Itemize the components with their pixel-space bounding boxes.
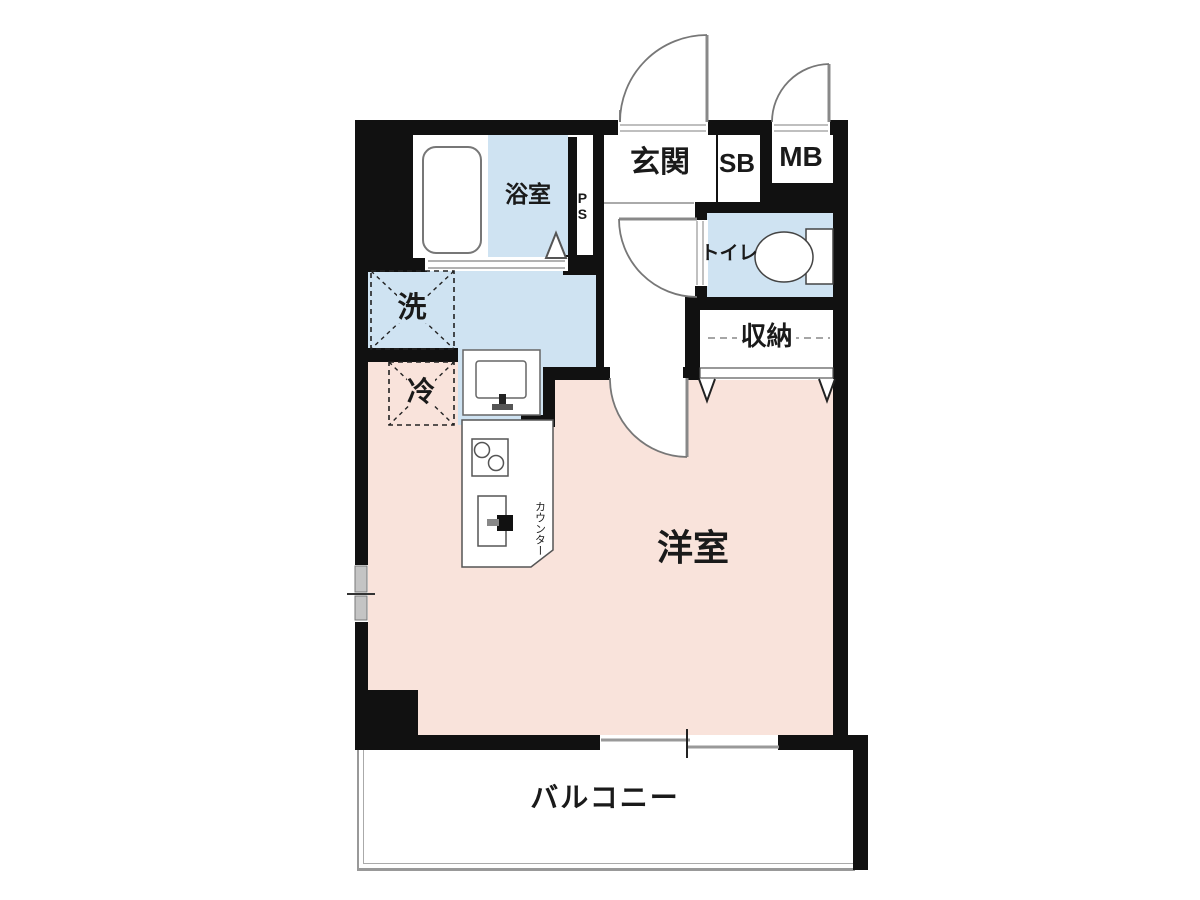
label-meter-box: MB [772, 142, 830, 173]
label-washing-machine: 洗 [377, 293, 447, 325]
wall-kitchen-c [521, 420, 535, 503]
floor-plan-canvas: 浴室 PS 玄関 SB MB トイレ 収納 洗 冷 洋室 カウンター バルコニー [0, 0, 1200, 900]
label-refrigerator: 冷 [391, 377, 451, 408]
wall-washroom-hall [596, 272, 604, 380]
label-storage: 収納 [700, 322, 833, 351]
wall-closet-left [685, 297, 700, 367]
label-western-room: 洋室 [598, 528, 788, 568]
wall-toilet-left-stub-top [695, 213, 707, 221]
bathtub-icon [422, 146, 482, 254]
wall-top-left [355, 120, 618, 135]
label-shoe-box: SB [714, 149, 760, 178]
wall-bottom-left-notch [358, 690, 418, 740]
meter-box-door-icon [772, 64, 829, 131]
wall-washer-bottom [355, 348, 458, 362]
label-entrance: 玄関 [606, 146, 714, 179]
label-balcony: バルコニー [455, 783, 755, 814]
label-bathroom: 浴室 [488, 182, 568, 207]
wall-balcony-right [853, 737, 868, 870]
wall-bath-bottom [355, 258, 427, 272]
entrance-door-icon [620, 35, 707, 131]
wall-toilet-top [695, 202, 848, 213]
wall-right [833, 120, 848, 748]
wall-closet-door-stub [683, 367, 700, 380]
wall-left-upper [355, 120, 368, 565]
wall-bath-left-block [368, 135, 413, 265]
label-pipe-shaft: PS [574, 180, 589, 232]
label-kitchen-counter: カウンター [533, 492, 546, 564]
wall-toilet-bottom [695, 297, 848, 310]
wall-ps-right [593, 120, 604, 275]
vanity-floor [458, 348, 543, 425]
label-toilet: トイレ [698, 244, 760, 265]
